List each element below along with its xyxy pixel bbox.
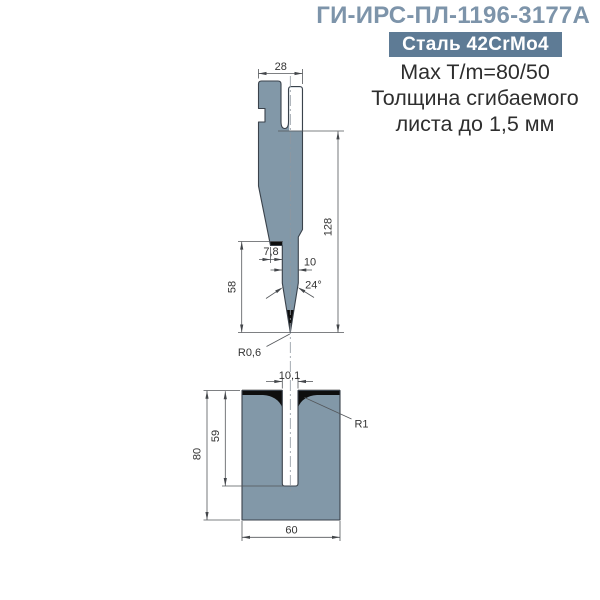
dim-label-60: 60 bbox=[285, 525, 297, 537]
dim-label-58: 58 bbox=[227, 281, 239, 293]
dim-label-59: 59 bbox=[210, 430, 222, 442]
drawing-page: 28 128 58 7,8 bbox=[0, 0, 600, 600]
dim-die-height: 80 bbox=[192, 391, 241, 521]
dim-label-28: 28 bbox=[275, 61, 287, 73]
dim-punch-shoulder: 7,8 bbox=[259, 246, 282, 263]
dim-label-24deg: 24° bbox=[305, 280, 322, 292]
spec-sheet-thickness-2: листа до 1,5 мм bbox=[355, 111, 595, 137]
die-body bbox=[242, 391, 340, 521]
spec-sheet-thickness-1: Толщина сгибаемого bbox=[355, 85, 595, 111]
dim-die-width: 60 bbox=[242, 521, 340, 541]
punch-view bbox=[259, 81, 303, 333]
dim-punch-tip-radius: R0,6 bbox=[238, 334, 290, 359]
dim-label-10-1: 10,1 bbox=[279, 370, 300, 382]
dim-die-slot-width: 10,1 bbox=[266, 370, 313, 389]
punch-head-relief-area bbox=[289, 87, 302, 130]
dim-label-7-8: 7,8 bbox=[263, 246, 278, 258]
spec-text-block: Max T/m=80/50 Толщина сгибаемого листа д… bbox=[355, 59, 595, 137]
steel-grade-badge: Сталь 42CrMo4 bbox=[389, 32, 562, 57]
dim-label-10: 10 bbox=[304, 257, 316, 269]
dim-label-r1: R1 bbox=[354, 419, 368, 431]
dim-label-r0-6: R0,6 bbox=[238, 347, 261, 359]
dim-label-80: 80 bbox=[192, 448, 204, 460]
page-title: ГИ-ИРС-ПЛ-1196-3177А bbox=[316, 2, 590, 30]
dim-label-128: 128 bbox=[323, 218, 335, 236]
die-view bbox=[242, 390, 340, 520]
spec-max-tonnage: Max T/m=80/50 bbox=[355, 59, 595, 85]
